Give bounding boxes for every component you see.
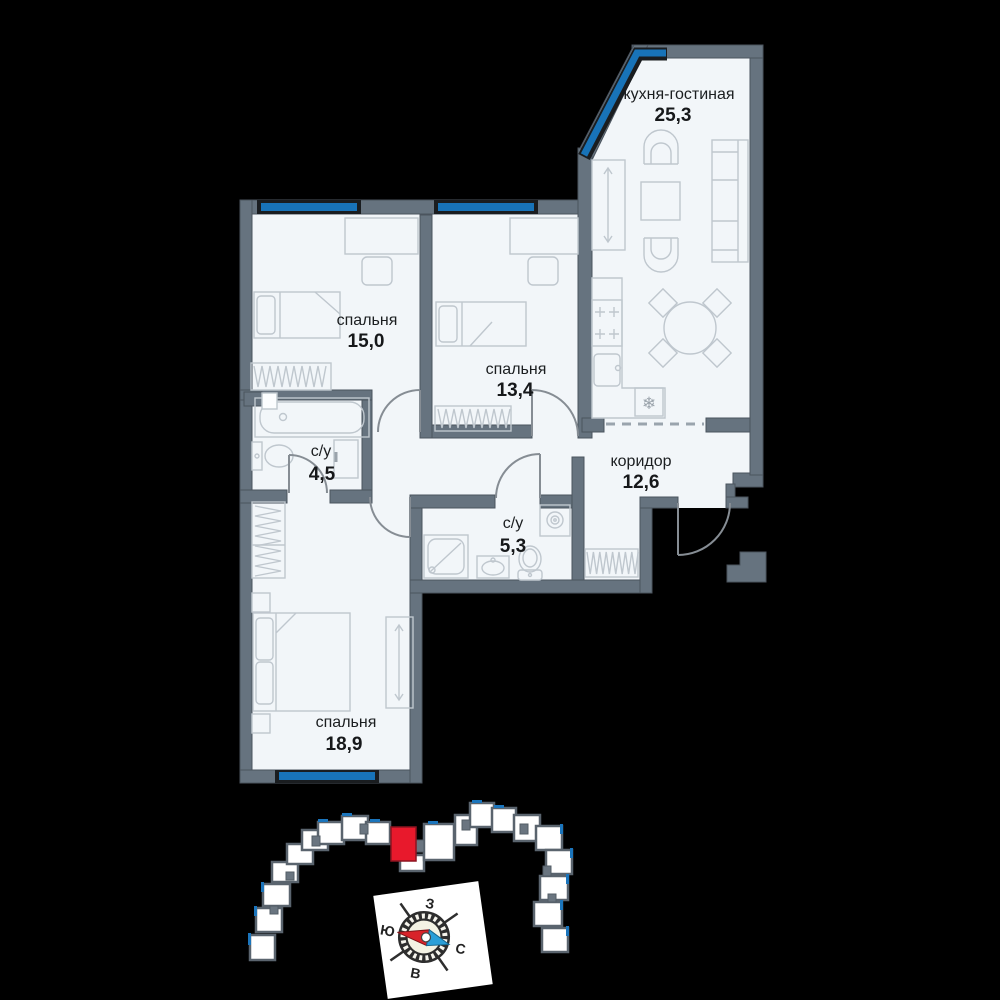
room-name-bedroom-2: спальня <box>486 361 547 378</box>
room-area-bathroom-1: 4,5 <box>309 464 336 485</box>
floor-plan-page: ❄ кухня-гостиная 25,3 спальня 15,0 спаль… <box>0 0 1000 1000</box>
room-area-bathroom-2: 5,3 <box>500 536 526 557</box>
door-entrance <box>678 503 730 555</box>
highlighted-unit-block <box>391 827 416 861</box>
window-bedroom-2 <box>434 200 538 214</box>
room-name-bedroom-1: спальня <box>337 312 398 329</box>
room-name-kitchen: кухня-гостиная <box>623 86 734 103</box>
room-name-bedroom-3: спальня <box>316 714 377 731</box>
snowflake-icon: ❄ <box>642 394 656 413</box>
floor-plan: ❄ кухня-гостиная 25,3 спальня 15,0 спаль… <box>0 0 1000 1000</box>
compass: З В Ю С <box>373 881 493 999</box>
room-name-bathroom-2: с/у <box>503 515 523 532</box>
room-name-bathroom-1: с/у <box>311 443 331 460</box>
window-bedroom-3 <box>275 770 379 783</box>
window-bedroom-1 <box>257 200 361 214</box>
room-area-bedroom-1: 15,0 <box>348 331 385 352</box>
duct-box <box>262 393 277 409</box>
room-area-bedroom-3: 18,9 <box>326 734 363 755</box>
room-area-bedroom-2: 13,4 <box>497 380 534 401</box>
room-area-kitchen: 25,3 <box>655 105 692 126</box>
room-name-corridor: коридор <box>610 453 671 470</box>
room-area-corridor: 12,6 <box>623 472 660 493</box>
compass-south-label: Ю <box>379 921 396 939</box>
